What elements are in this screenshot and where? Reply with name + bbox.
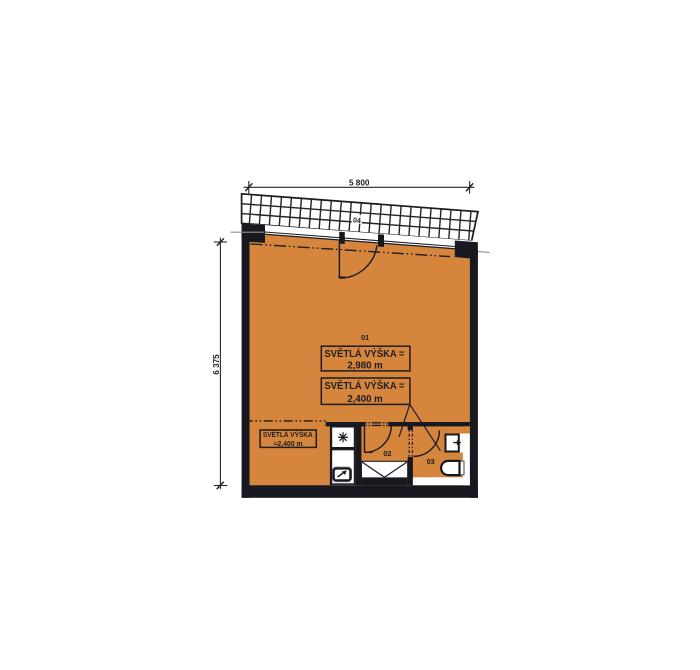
svg-text:≈2,400 m: ≈2,400 m — [274, 441, 303, 448]
svg-text:SVĚTLÁ VÝŠKA =: SVĚTLÁ VÝŠKA = — [325, 379, 405, 392]
svg-text:02: 02 — [383, 449, 391, 458]
svg-text:6 375: 6 375 — [212, 354, 221, 375]
svg-text:01: 01 — [361, 333, 369, 342]
svg-text:2,980 m: 2,980 m — [347, 361, 382, 372]
svg-text:2,400 m: 2,400 m — [347, 394, 382, 405]
svg-text:04: 04 — [353, 217, 361, 225]
svg-text:03: 03 — [427, 457, 435, 466]
svg-text:SVĚTLÁ VÝŠKA =: SVĚTLÁ VÝŠKA = — [325, 347, 405, 360]
svg-text:SVĚTLÁ VÝŠKA: SVĚTLÁ VÝŠKA — [263, 430, 313, 439]
svg-text:5 800: 5 800 — [349, 179, 370, 188]
